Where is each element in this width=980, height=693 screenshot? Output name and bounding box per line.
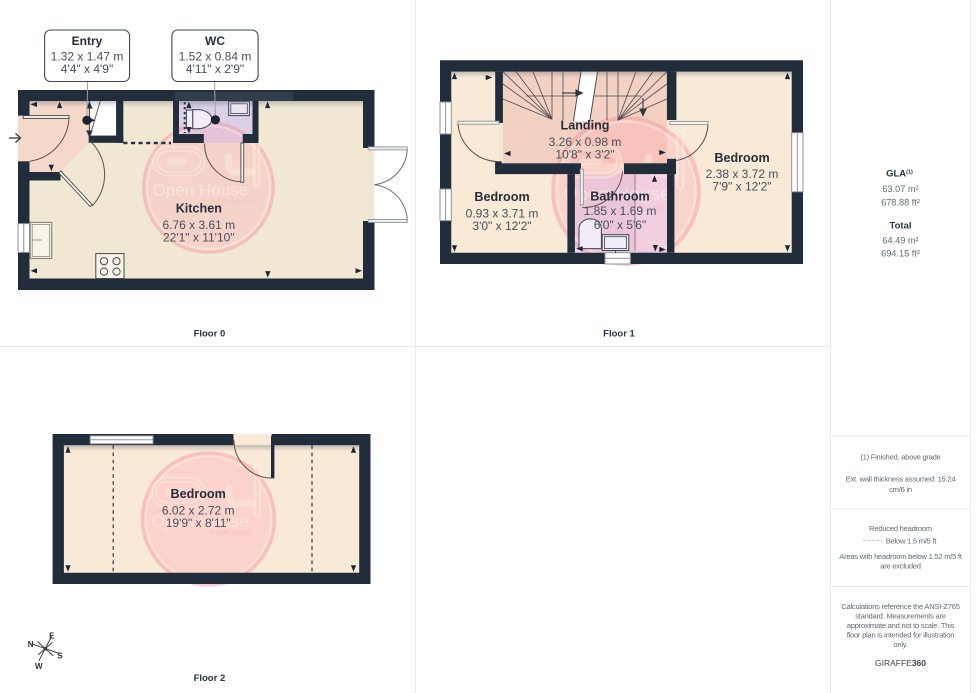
svg-text:cm/6 in: cm/6 in <box>889 485 912 494</box>
svg-text:are excluded: are excluded <box>880 561 921 570</box>
svg-text:Areas with headroom below 1.52: Areas with headroom below 1.52 m/5 ft <box>839 552 963 561</box>
svg-text:E: E <box>49 632 55 641</box>
svg-text:Bedroom: Bedroom <box>474 190 529 204</box>
svg-text:Landing: Landing <box>561 119 610 133</box>
svg-text:Kitchen: Kitchen <box>176 201 222 215</box>
svg-text:Bedroom: Bedroom <box>714 151 769 165</box>
svg-text:Reduced headroom: Reduced headroom <box>869 524 932 533</box>
svg-text:standard. Measurements are: standard. Measurements are <box>855 611 946 620</box>
svg-text:Floor 2: Floor 2 <box>194 673 226 684</box>
svg-text:Ext. wall thickness assumed: 1: Ext. wall thickness assumed: 15.24 <box>846 475 956 484</box>
svg-text:Calculations reference the ANS: Calculations reference the ANSI-Z765 <box>841 602 959 611</box>
svg-text:6'0" x 5'6": 6'0" x 5'6" <box>594 218 646 232</box>
svg-text:approximate and not to scale.: approximate and not to scale. This <box>847 621 955 630</box>
svg-text:S: S <box>57 652 63 661</box>
svg-text:Floor 0: Floor 0 <box>194 329 226 340</box>
svg-text:W: W <box>35 662 43 671</box>
svg-text:Floor 1: Floor 1 <box>603 329 635 340</box>
svg-text:GLA(1): GLA(1) <box>886 169 913 180</box>
svg-text:694.15 ft²: 694.15 ft² <box>881 249 920 259</box>
svg-text:Entry: Entry <box>72 34 103 48</box>
svg-text:678.88 ft²: 678.88 ft² <box>881 198 920 208</box>
svg-text:N: N <box>28 640 34 649</box>
svg-text:1.85 x 1.69 m: 1.85 x 1.69 m <box>584 204 657 218</box>
svg-text:Total: Total <box>890 221 912 232</box>
svg-text:(1) Finished, above grade: (1) Finished, above grade <box>860 453 940 462</box>
svg-text:3'0" x 12'2": 3'0" x 12'2" <box>472 219 531 233</box>
svg-text:only.: only. <box>893 640 907 649</box>
svg-text:10'8" x 3'2": 10'8" x 3'2" <box>555 148 614 162</box>
svg-text:22'1" x 11'10": 22'1" x 11'10" <box>163 231 235 245</box>
svg-text:floor plan is intended for ill: floor plan is intended for illustration <box>847 630 955 639</box>
svg-text:Bathroom: Bathroom <box>590 190 649 204</box>
svg-text:4'11" x 2'9": 4'11" x 2'9" <box>186 62 244 76</box>
svg-text:7'9" x 12'2": 7'9" x 12'2" <box>712 179 771 193</box>
svg-text:64.49 m²: 64.49 m² <box>882 236 918 246</box>
svg-text:Bedroom: Bedroom <box>171 487 226 501</box>
svg-text:Below 1.5 m/5 ft: Below 1.5 m/5 ft <box>886 536 938 545</box>
svg-text:WC: WC <box>205 34 225 48</box>
svg-text:19'9" x 8'11": 19'9" x 8'11" <box>166 516 231 530</box>
svg-text:4'4" x 4'9": 4'4" x 4'9" <box>61 62 113 76</box>
svg-text:63.07 m²: 63.07 m² <box>882 184 918 194</box>
svg-text:GIRAFFE360: GIRAFFE360 <box>875 658 926 668</box>
